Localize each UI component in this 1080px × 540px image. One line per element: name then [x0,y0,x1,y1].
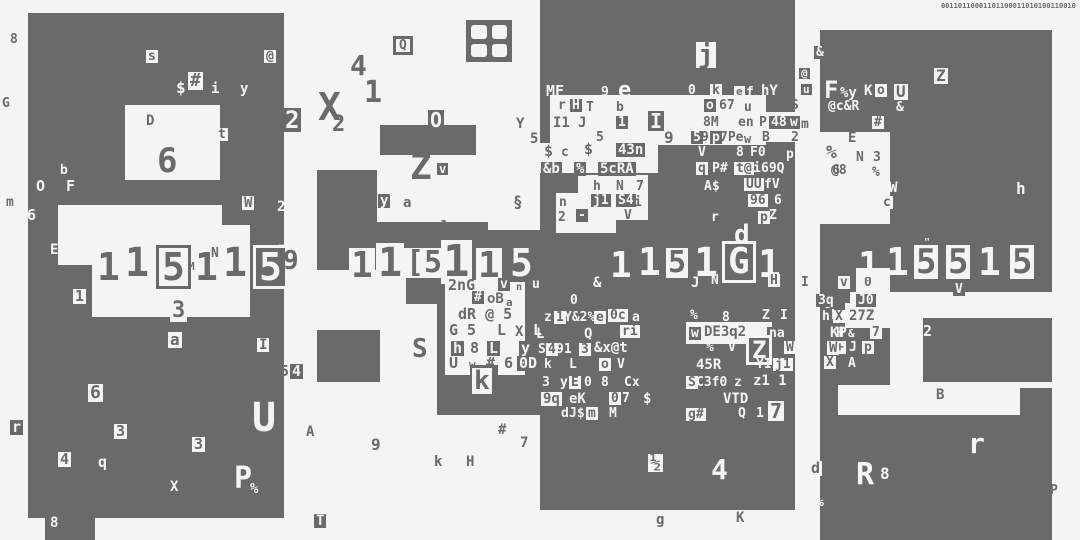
glyph: 2 [791,131,799,144]
glyph: 4 [711,456,728,484]
glyph: a [632,311,640,324]
glyph: 9 [283,248,299,274]
glyph: 1 [364,78,382,108]
glyph: l [441,220,449,234]
glyph: j1 [591,194,611,207]
glyph: j1 [773,358,793,371]
glyph: F [66,179,75,194]
glyph: & [814,46,826,59]
glyph: w [744,133,751,145]
glyph: h [822,310,830,323]
glyph: b [60,164,68,177]
glyph: s [808,164,816,177]
glyph: U [449,356,458,371]
glyph: MF [546,84,564,99]
glyph: 0 [609,392,621,405]
glyph: 7 [768,401,784,421]
glyph: p [786,148,794,161]
glyph: 5 [810,309,818,322]
glyph: 96 [748,194,768,207]
window-pane [492,25,508,39]
glitch-canvas: 00110110001101100011010100110010 8Gms@$#… [0,0,1080,540]
glyph: L [536,327,544,341]
glyph: W [784,341,796,354]
glyph: &x@t [594,341,628,355]
glyph: J$ [569,407,585,420]
glyph: K [736,511,744,525]
glyph: 1 [376,243,404,283]
glyph: % [690,309,698,322]
glyph: 1 [886,243,909,281]
glyph: 1 [97,248,120,286]
glyph: I1 [553,116,570,130]
glyph: 2 [923,324,932,339]
window-pane [492,44,508,58]
glyph: n [559,196,567,209]
glyph: & [848,328,855,339]
glyph: # 6 [486,356,513,371]
glyph: 27Z [849,309,874,323]
glyph: w [689,327,701,340]
glyph: k [544,358,552,371]
glyph: a [403,196,411,210]
glyph: $ [544,144,553,159]
glyph: w [795,312,802,323]
glyph: I [257,338,269,352]
glyph: 45R [696,358,721,372]
glyph: N [711,274,719,287]
glyph: B [762,131,770,144]
glyph: 1 [223,243,247,283]
glyph: G 5 [449,323,476,338]
glyph: Z [410,150,432,186]
glyph: 4 [290,364,303,379]
glyph: # [811,341,819,354]
glyph: J [849,341,857,354]
glyph: G [2,97,10,110]
glyph: 69Q [761,162,784,175]
glyph: 0D [517,356,539,371]
glyph: 8 [470,341,479,356]
glyph: $ [584,142,593,157]
glyph: X [515,325,523,339]
glyph: X [824,356,836,369]
glyph: 2 [558,211,566,224]
glyph: q [696,162,708,175]
glyph: c [561,146,569,159]
glyph: 43n [616,143,645,157]
window-pane [471,25,487,39]
binary-string: 00110110001101100011010100110010 [941,2,1076,10]
glyph: 8 [736,146,744,159]
glyph: h [593,180,601,193]
glyph: $ [643,392,651,406]
glyph: % [816,496,824,509]
glyph: 91 [556,343,572,356]
glyph: N [856,151,864,164]
glyph: S [538,343,546,356]
glyph: @ [799,68,810,79]
glyph: & [593,276,601,290]
glyph: z [544,311,552,324]
glyph: 5 [530,132,538,146]
glyph: L [569,358,577,371]
glyph: O [36,179,45,194]
glyph: X [170,480,178,494]
glyph: " [924,238,930,248]
glyph: en [738,116,754,129]
glyph: o [875,84,887,97]
light-block [838,385,1020,415]
glyph: 8 [601,376,609,389]
glyph: y [378,194,390,208]
glyph: O [428,110,444,130]
glyph: 2 [283,108,301,132]
glyph: s [146,50,158,63]
glyph: 3 [579,343,591,356]
glyph: b [616,101,624,114]
dark-block [317,170,377,227]
glyph: S [412,336,428,362]
glyph: d [561,407,569,420]
glyph: 3q [816,294,836,307]
glyph: A [848,357,856,370]
glyph: 5cRA [598,162,636,176]
glyph: i [529,307,537,321]
glyph: % [706,341,714,354]
glyph: i [211,82,219,96]
glyph: 1 [978,243,1001,281]
glyph: KP [830,326,847,340]
glyph: 1 [858,248,880,284]
glyph: E [569,376,581,389]
glyph: o [704,99,716,112]
glyph: a [168,332,182,348]
glyph: 5 [914,245,938,279]
glyph: v [498,278,510,291]
glyph: u [744,101,752,114]
glyph: @8 [831,164,847,177]
glyph: Y&2% [564,311,595,324]
glyph: L [497,323,506,338]
glyph: 3 [192,437,205,452]
glyph: o [599,358,611,371]
glyph: 8 [880,466,890,482]
glyph: 3 [542,376,550,389]
glyph: % [826,144,837,162]
glyph: 8M [703,116,719,129]
glyph: 5 [280,364,289,379]
glyph: 8 [10,33,18,46]
glyph: % [574,162,586,176]
glyph: 8 [722,311,730,324]
glyph: % [250,482,258,496]
glyph: w [469,359,476,370]
glyph: 9 [664,130,674,146]
glyph: t [216,128,228,141]
glyph: P# [712,162,728,175]
glyph: M [609,407,617,420]
glyph: G [722,241,756,283]
glyph: F0 [750,146,766,159]
glyph: Q [738,407,746,420]
glyph: 1 [616,116,628,129]
glyph: ½ [648,454,663,472]
glyph: n [821,274,828,286]
glyph: 0 [570,294,578,307]
glyph: y [240,82,248,96]
glyph: Z [762,309,770,322]
glyph: VTD [723,392,748,406]
glyph: 5 [156,245,191,289]
glyph: u [532,278,540,291]
glyph: 1 [125,243,149,283]
glyph: K [864,84,872,98]
glyph: f [746,86,754,99]
glyph: W [889,181,897,195]
glyph: 3 [114,424,127,439]
glyph: Z [934,68,948,84]
glyph: n [516,283,522,293]
glyph: 6 [88,384,103,402]
glyph: @ [264,50,276,63]
glyph: p [862,341,874,354]
glyph: 7 [636,180,644,193]
glyph: d [809,461,822,476]
glyph: J [578,116,586,130]
glyph: dR @ 5 [458,307,512,322]
glyph: i [753,162,761,175]
glyph: 2 [332,114,345,136]
glyph: y [560,376,568,389]
glyph: 8 [50,516,58,530]
glyph: 1 [638,243,661,281]
glyph: I [648,111,664,131]
glyph: v [437,163,448,175]
glyph: Z [769,209,777,222]
glyph: I [780,309,788,322]
glyph: $ [176,80,186,96]
glyph: 9q [541,392,562,406]
window-grid-icon [466,20,512,62]
glyph: # [498,423,506,437]
glyph: 5 [596,131,604,144]
glyph: 6 [774,194,782,207]
glyph: 7 [622,392,630,405]
glyph: z1 1 [753,374,787,388]
glyph: 67 [719,99,735,112]
glyph: 48 [769,116,789,129]
glyph: r [558,99,566,112]
glyph: m [586,407,598,420]
glyph: D [146,114,154,128]
glyph: T [586,101,594,114]
glyph: B [936,388,944,402]
glyph: A$ [704,180,720,193]
glyph: Cx [624,376,640,389]
glyph: E [50,243,58,257]
glyph: 9 [701,131,709,144]
glyph: 4 [58,452,71,467]
glyph: r [711,211,719,224]
glyph: I [799,276,811,289]
glyph: E [848,131,856,145]
glyph: r [10,420,23,435]
glyph: S4 [616,194,636,207]
glyph: 7Pe [720,131,743,144]
glyph: # [472,291,484,304]
glyph: k [710,84,722,97]
glyph: 0 [584,376,592,389]
glyph: J [691,276,699,290]
glyph: u [801,84,812,95]
glyph: e [618,80,631,102]
glyph: eK [569,392,586,406]
glyph: v [838,276,850,289]
glyph: V [698,146,706,159]
glyph: 6 [27,208,36,223]
glyph: q [98,455,107,470]
dark-block [317,330,380,382]
glyph: DE3q2 [704,325,746,339]
glyph: H [768,274,780,287]
glyph: U [252,398,276,438]
glyph: g# [686,408,706,421]
glyph: t@ [734,162,754,175]
glyph: 1 [73,289,86,304]
glyph: V [624,209,632,222]
glyph: S [791,99,799,112]
glyph: 5 [666,248,688,278]
glyph: H [570,99,582,112]
glyph: z [734,376,742,389]
glyph: m [801,118,809,131]
glyph: Q [393,36,413,55]
glyph: m [6,196,14,209]
glyph: % [872,166,880,179]
glyph: A [306,425,314,439]
glyph: W [827,341,839,355]
glyph: k [434,455,442,469]
glyph: 1 [195,248,218,286]
glyph: j [696,42,716,68]
glyph: @c&R [828,100,859,113]
glyph: 7 [870,326,882,339]
glyph: 5 [946,245,970,279]
glyph: &b [541,162,562,176]
glyph: & [896,101,904,114]
window-pane [471,44,487,58]
glyph: 2 [277,200,285,214]
glyph: T [314,514,326,528]
glyph: 0c [608,309,628,322]
glyph: Q [584,327,592,341]
glyph: V [728,341,736,354]
glyph: UU [744,178,764,191]
glyph: 9 [371,437,381,453]
glyph: # [188,72,203,90]
glyph: i [634,196,642,209]
glyph: 6 [157,144,177,178]
glyph: V [953,283,965,296]
glyph: e [734,86,745,97]
glyph: 1 [756,407,764,420]
glyph: F [700,70,706,80]
glyph: R [856,460,874,490]
glyph: 7 [520,436,528,450]
glyph: X [833,310,845,323]
glyph: P [759,116,767,129]
glyph: fV [764,178,780,191]
glyph: oB [487,292,504,306]
glyph: %y [840,86,857,100]
glyph: H [466,455,474,469]
glyph: YI [756,358,772,371]
glyph: 5 [508,244,535,282]
glyph: h [1016,181,1026,197]
glyph: § [513,194,523,210]
glyph: J0 [856,294,876,307]
dark-block [923,318,1052,382]
glyph: 0 [688,84,696,97]
glyph: - [576,209,588,222]
glyph: 9 [601,86,609,99]
glyph: W [242,196,254,210]
glyph: e [594,311,606,324]
glyph: w [788,116,800,129]
glyph: hY [761,84,778,98]
glyph: N [616,180,624,193]
glyph: P [1050,484,1058,497]
glyph: r [968,430,985,458]
glyph: g [656,513,664,527]
glyph: C3f0 [696,376,727,389]
glyph: c [881,196,893,209]
glyph: 1 [349,248,375,284]
glyph: Y [516,117,524,131]
glyph: 3 [873,151,881,164]
glyph: 5 [1010,245,1034,279]
glyph: U [894,84,908,100]
glyph: # [872,116,884,129]
glyph: 1 [610,248,632,284]
glyph: 3 [170,300,187,322]
glyph: V [617,358,625,371]
glyph: ri [620,325,640,338]
